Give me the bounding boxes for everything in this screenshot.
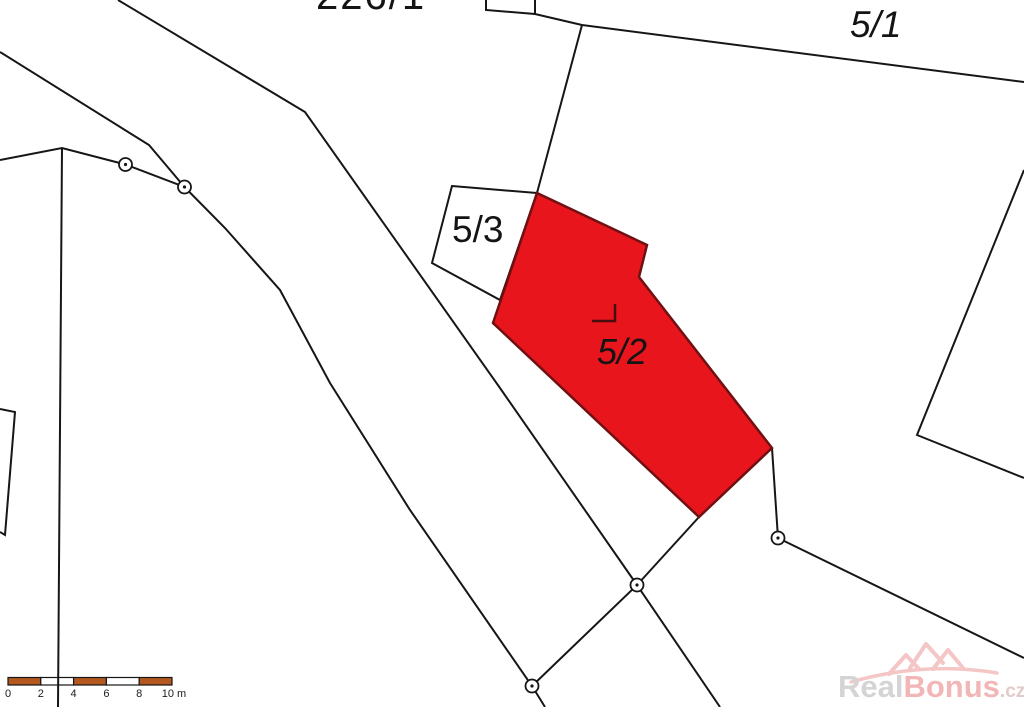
boundary-top-left <box>0 52 185 187</box>
scale-bar-segment <box>139 678 172 686</box>
watermark-brand-accent: Bonus <box>903 669 999 704</box>
scale-tick-label: 6 <box>103 688 109 700</box>
scale-bar-segment <box>8 678 41 686</box>
watermark-brand-primary: Real <box>838 669 903 704</box>
scale-tick-label: 2 <box>38 688 44 700</box>
parcel-label-5-2: 5/2 <box>597 334 647 370</box>
scale-tick-label: 10 m <box>162 688 186 700</box>
parcel-label-5-1: 5/1 <box>850 6 901 43</box>
boundary-parcel-5-1-bottom <box>582 25 1024 82</box>
cadastral-map-drawing <box>0 0 1024 707</box>
scale-tick-label: 4 <box>71 688 77 700</box>
boundary-node-branch-ne <box>637 517 699 585</box>
scale-tick-label: 8 <box>136 688 142 700</box>
survey-point <box>526 680 539 693</box>
scale-bar-segment <box>74 678 107 686</box>
building-sliver-left-edge <box>0 409 15 535</box>
boundary-node-branch-sw <box>532 585 637 686</box>
boundary-bottom-right-corner <box>917 170 1024 478</box>
survey-point <box>772 532 785 545</box>
scale-bar <box>8 678 172 686</box>
survey-point <box>119 158 132 171</box>
boundary-vertical-left <box>58 148 62 707</box>
cadastral-map: 226/1 5/1 5/3 5/2 0 2 4 6 8 10 m RealBon… <box>0 0 1024 707</box>
parcel-label-road: 226/1 <box>316 0 426 16</box>
scale-tick-label: 0 <box>5 688 11 700</box>
watermark-brand: RealBonus.cz <box>838 671 1024 702</box>
boundary-right-lower <box>772 448 1024 658</box>
parcel-boundaries <box>0 0 1024 707</box>
boundary-node-branch-se <box>637 585 720 707</box>
parcel-label-5-3: 5/3 <box>452 211 503 248</box>
survey-point <box>631 579 644 592</box>
watermark-brand-suffix: .cz <box>1000 681 1024 702</box>
scale-bar-segment <box>106 678 139 686</box>
boundary-center-vertical <box>537 25 582 193</box>
survey-point <box>178 181 191 194</box>
